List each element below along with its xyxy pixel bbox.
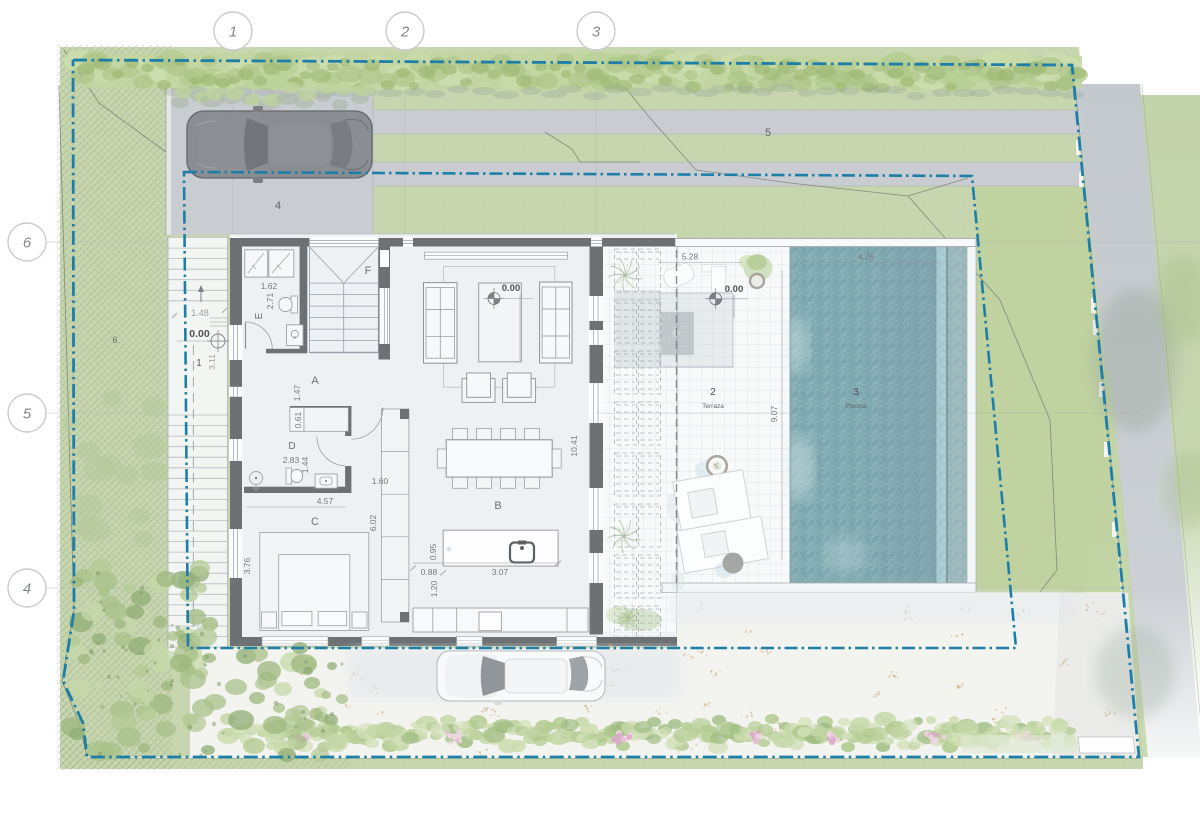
svg-text:1.44: 1.44 xyxy=(300,456,310,473)
svg-text:1.20: 1.20 xyxy=(429,580,439,597)
svg-text:B: B xyxy=(494,500,501,512)
svg-text:0.88: 0.88 xyxy=(421,567,438,577)
svg-text:5: 5 xyxy=(765,127,771,139)
svg-text:5.28: 5.28 xyxy=(682,252,699,262)
svg-text:D: D xyxy=(288,441,295,452)
svg-text:4.26: 4.26 xyxy=(858,252,875,262)
svg-text:6: 6 xyxy=(112,335,117,345)
svg-text:6: 6 xyxy=(23,235,32,252)
svg-text:9.07: 9.07 xyxy=(769,405,779,422)
svg-text:Piscina: Piscina xyxy=(846,403,867,410)
svg-text:0.00: 0.00 xyxy=(725,284,744,295)
svg-text:3.76: 3.76 xyxy=(242,557,252,574)
svg-text:2: 2 xyxy=(400,24,410,41)
svg-text:3.07: 3.07 xyxy=(492,567,509,577)
svg-text:F: F xyxy=(365,265,372,277)
svg-text:3.11: 3.11 xyxy=(207,354,217,370)
svg-text:1: 1 xyxy=(196,358,202,369)
svg-text:0.95: 0.95 xyxy=(428,543,438,560)
svg-text:1.48: 1.48 xyxy=(191,308,209,318)
svg-text:2.83: 2.83 xyxy=(283,455,300,465)
svg-text:2: 2 xyxy=(710,387,716,398)
svg-text:A: A xyxy=(311,375,319,387)
svg-text:E: E xyxy=(254,312,265,319)
svg-text:10.41: 10.41 xyxy=(569,435,579,457)
svg-text:0.61: 0.61 xyxy=(293,411,303,428)
svg-text:3: 3 xyxy=(853,387,859,398)
svg-text:0.00: 0.00 xyxy=(502,283,521,294)
svg-text:C: C xyxy=(311,516,319,528)
svg-text:3: 3 xyxy=(592,24,601,41)
svg-text:Terraza: Terraza xyxy=(702,403,724,410)
svg-text:4.57: 4.57 xyxy=(317,496,334,506)
svg-text:5: 5 xyxy=(23,406,32,423)
svg-text:4: 4 xyxy=(23,581,31,598)
svg-text:4: 4 xyxy=(275,200,281,212)
svg-text:6.02: 6.02 xyxy=(368,514,378,531)
svg-text:1: 1 xyxy=(229,24,237,41)
svg-text:2.71: 2.71 xyxy=(265,292,275,309)
svg-text:1.60: 1.60 xyxy=(372,476,389,486)
svg-text:1.62: 1.62 xyxy=(261,281,278,291)
svg-text:1.47: 1.47 xyxy=(292,384,302,401)
svg-text:0.00: 0.00 xyxy=(189,328,210,340)
